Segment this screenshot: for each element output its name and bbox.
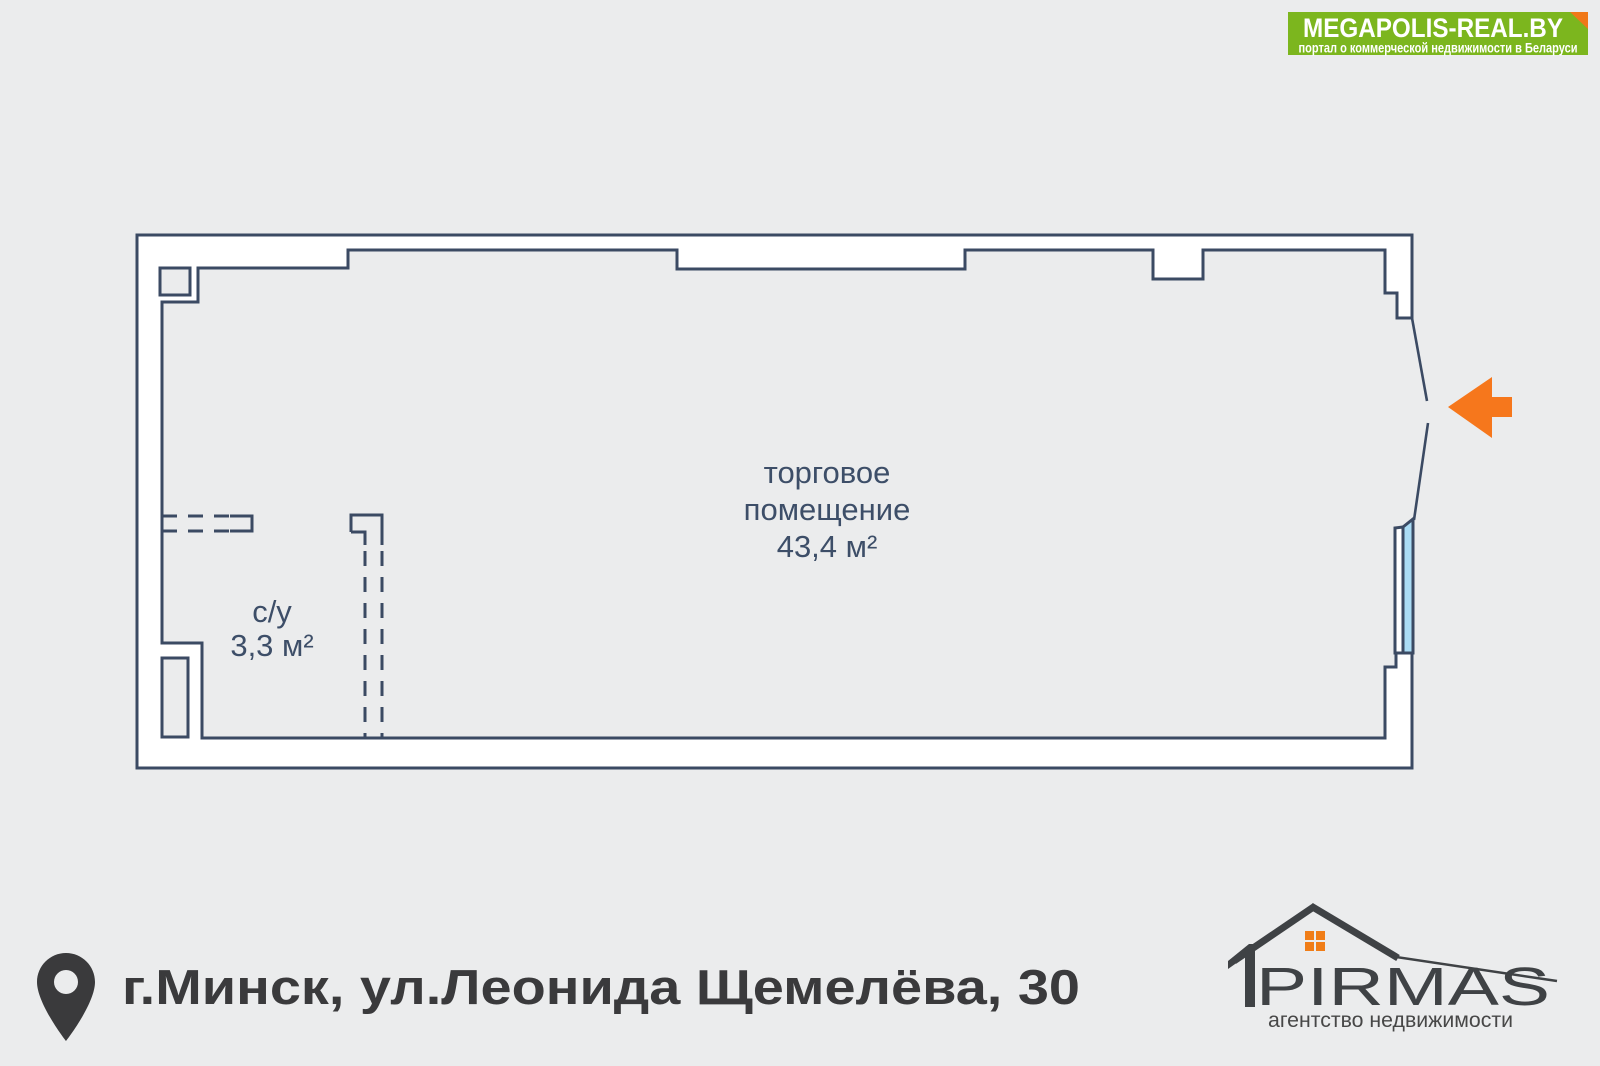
floorplan-canvas: торговое помещение 43,4 м² с/у 3,3 м² ME… (0, 0, 1600, 1066)
main-room-label-line1: торговое (764, 455, 891, 490)
bathroom-partition-horizontal (162, 516, 252, 531)
location-pin-icon (37, 953, 95, 1041)
logo-digit-one (1228, 944, 1255, 1007)
main-room-label: торговое помещение 43,4 м² (744, 455, 911, 564)
shaft-top-left (160, 268, 190, 295)
portal-banner-title: MEGAPOLIS-REAL.BY (1303, 13, 1563, 43)
entrance-arrow-icon (1448, 377, 1512, 438)
agency-logo: PIRMAS агентство недвижимости (1228, 906, 1557, 1032)
portal-banner-subtitle: портал о коммерческой недвижимости в Бел… (1299, 41, 1578, 56)
listing-floorplan-image: торговое помещение 43,4 м² с/у 3,3 м² ME… (0, 0, 1600, 1066)
address-text: г.Минск, ул.Леонида Щемелёва, 30 (122, 961, 1080, 1015)
main-room-label-line2: помещение (744, 492, 911, 527)
house-window-icon (1305, 931, 1325, 951)
bathroom-area: 3,3 м² (230, 628, 313, 663)
shaft-bottom-left (162, 658, 188, 737)
window-glass (1403, 519, 1413, 653)
portal-banner: MEGAPOLIS-REAL.BY портал о коммерческой … (1288, 12, 1588, 56)
main-room-area: 43,4 м² (777, 529, 878, 564)
bathroom-partition-vertical (351, 515, 382, 737)
agency-name: PIRMAS (1256, 957, 1550, 1017)
entrance-wall-upper (1412, 318, 1427, 401)
entrance-wall-lower (1414, 423, 1428, 520)
bathroom-name: с/у (252, 594, 292, 629)
bathroom-label: с/у 3,3 м² (230, 594, 313, 663)
agency-tagline: агентство недвижимости (1268, 1009, 1513, 1032)
address-block: г.Минск, ул.Леонида Щемелёва, 30 (37, 953, 1080, 1041)
floor-plan: торговое помещение 43,4 м² с/у 3,3 м² (137, 235, 1512, 768)
